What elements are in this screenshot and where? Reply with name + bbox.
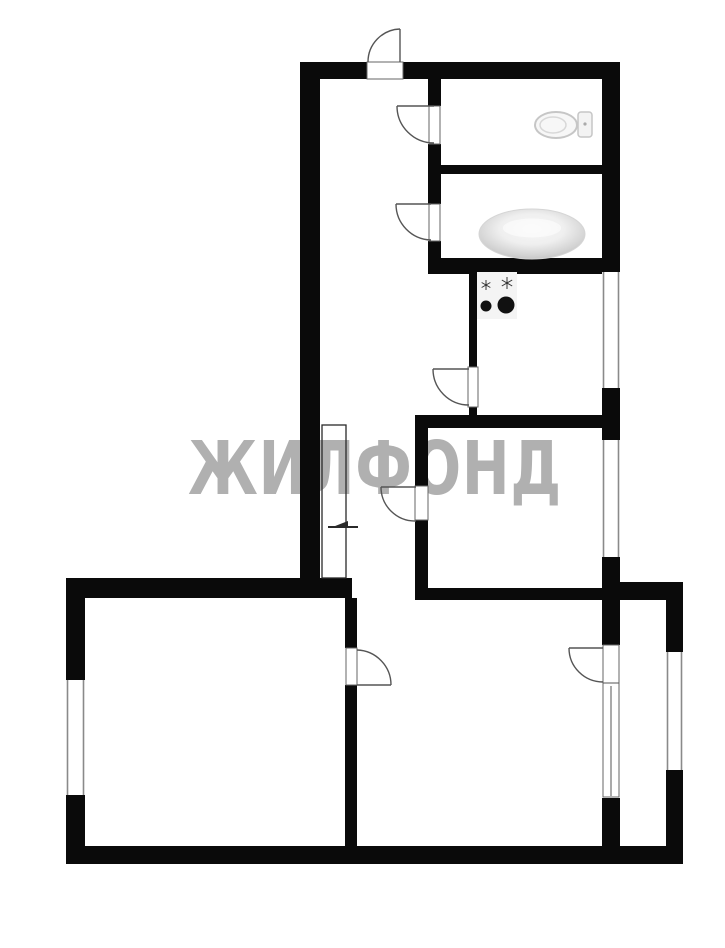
stove-burner (481, 301, 492, 312)
bathtub-highlight (503, 219, 561, 238)
kitchen-door-jamb (468, 367, 478, 407)
bathtub-icon (479, 209, 585, 259)
bedroom-window-gap (602, 440, 620, 557)
kitchen-bottom-wall (415, 415, 620, 428)
entry-door-sill (367, 62, 403, 79)
balcony-right-wall-b (666, 770, 683, 864)
stove-panel (477, 272, 517, 319)
kitchen-window-gap (602, 272, 620, 388)
left-wall-lower-a (66, 578, 85, 680)
toilet-bowl (535, 112, 577, 138)
bedroom-left-wall-a (415, 428, 428, 486)
bedroom-window (602, 440, 620, 557)
stove-icon (477, 272, 517, 319)
toilet-door-jamb (429, 106, 440, 144)
toilet-icon (535, 112, 592, 138)
room2-right-wall-a (345, 598, 357, 648)
bath-bottom-wall (428, 258, 620, 274)
wc-left-wall-a (428, 79, 441, 106)
left-wall-upper (300, 62, 320, 598)
top-wall-right (403, 62, 620, 79)
kitchen-window (602, 272, 620, 388)
balcony-right-wall-a (666, 582, 683, 652)
toilet-tank-button (583, 122, 586, 125)
kitchen-left-wall-a (469, 265, 477, 367)
room2-window (66, 680, 85, 795)
floor-plan-page: ЖИЛФОНД (0, 0, 725, 948)
balcony-window-gap (666, 652, 683, 770)
watermark-text: ЖИЛФОНД (188, 426, 562, 512)
room2-right-wall-b (345, 685, 357, 846)
room2-door-jamb (346, 648, 357, 685)
right-wall-lower (602, 557, 620, 645)
room2-window-gap (66, 680, 85, 795)
bedroom-door-jamb (415, 486, 428, 520)
stove-burner (498, 297, 515, 314)
right-wall-bottom (602, 798, 620, 846)
right-wall-top (602, 62, 620, 272)
bathroom-door-jamb (429, 204, 440, 241)
floor-plan: ЖИЛФОНД (0, 0, 725, 948)
room2-top-wall (66, 578, 352, 598)
right-wall-mid (602, 388, 620, 440)
bedroom-bottom-wall (415, 588, 620, 600)
balcony-window (666, 652, 683, 770)
wc-bath-divider-wall (428, 165, 602, 174)
bottom-wall (66, 846, 683, 864)
